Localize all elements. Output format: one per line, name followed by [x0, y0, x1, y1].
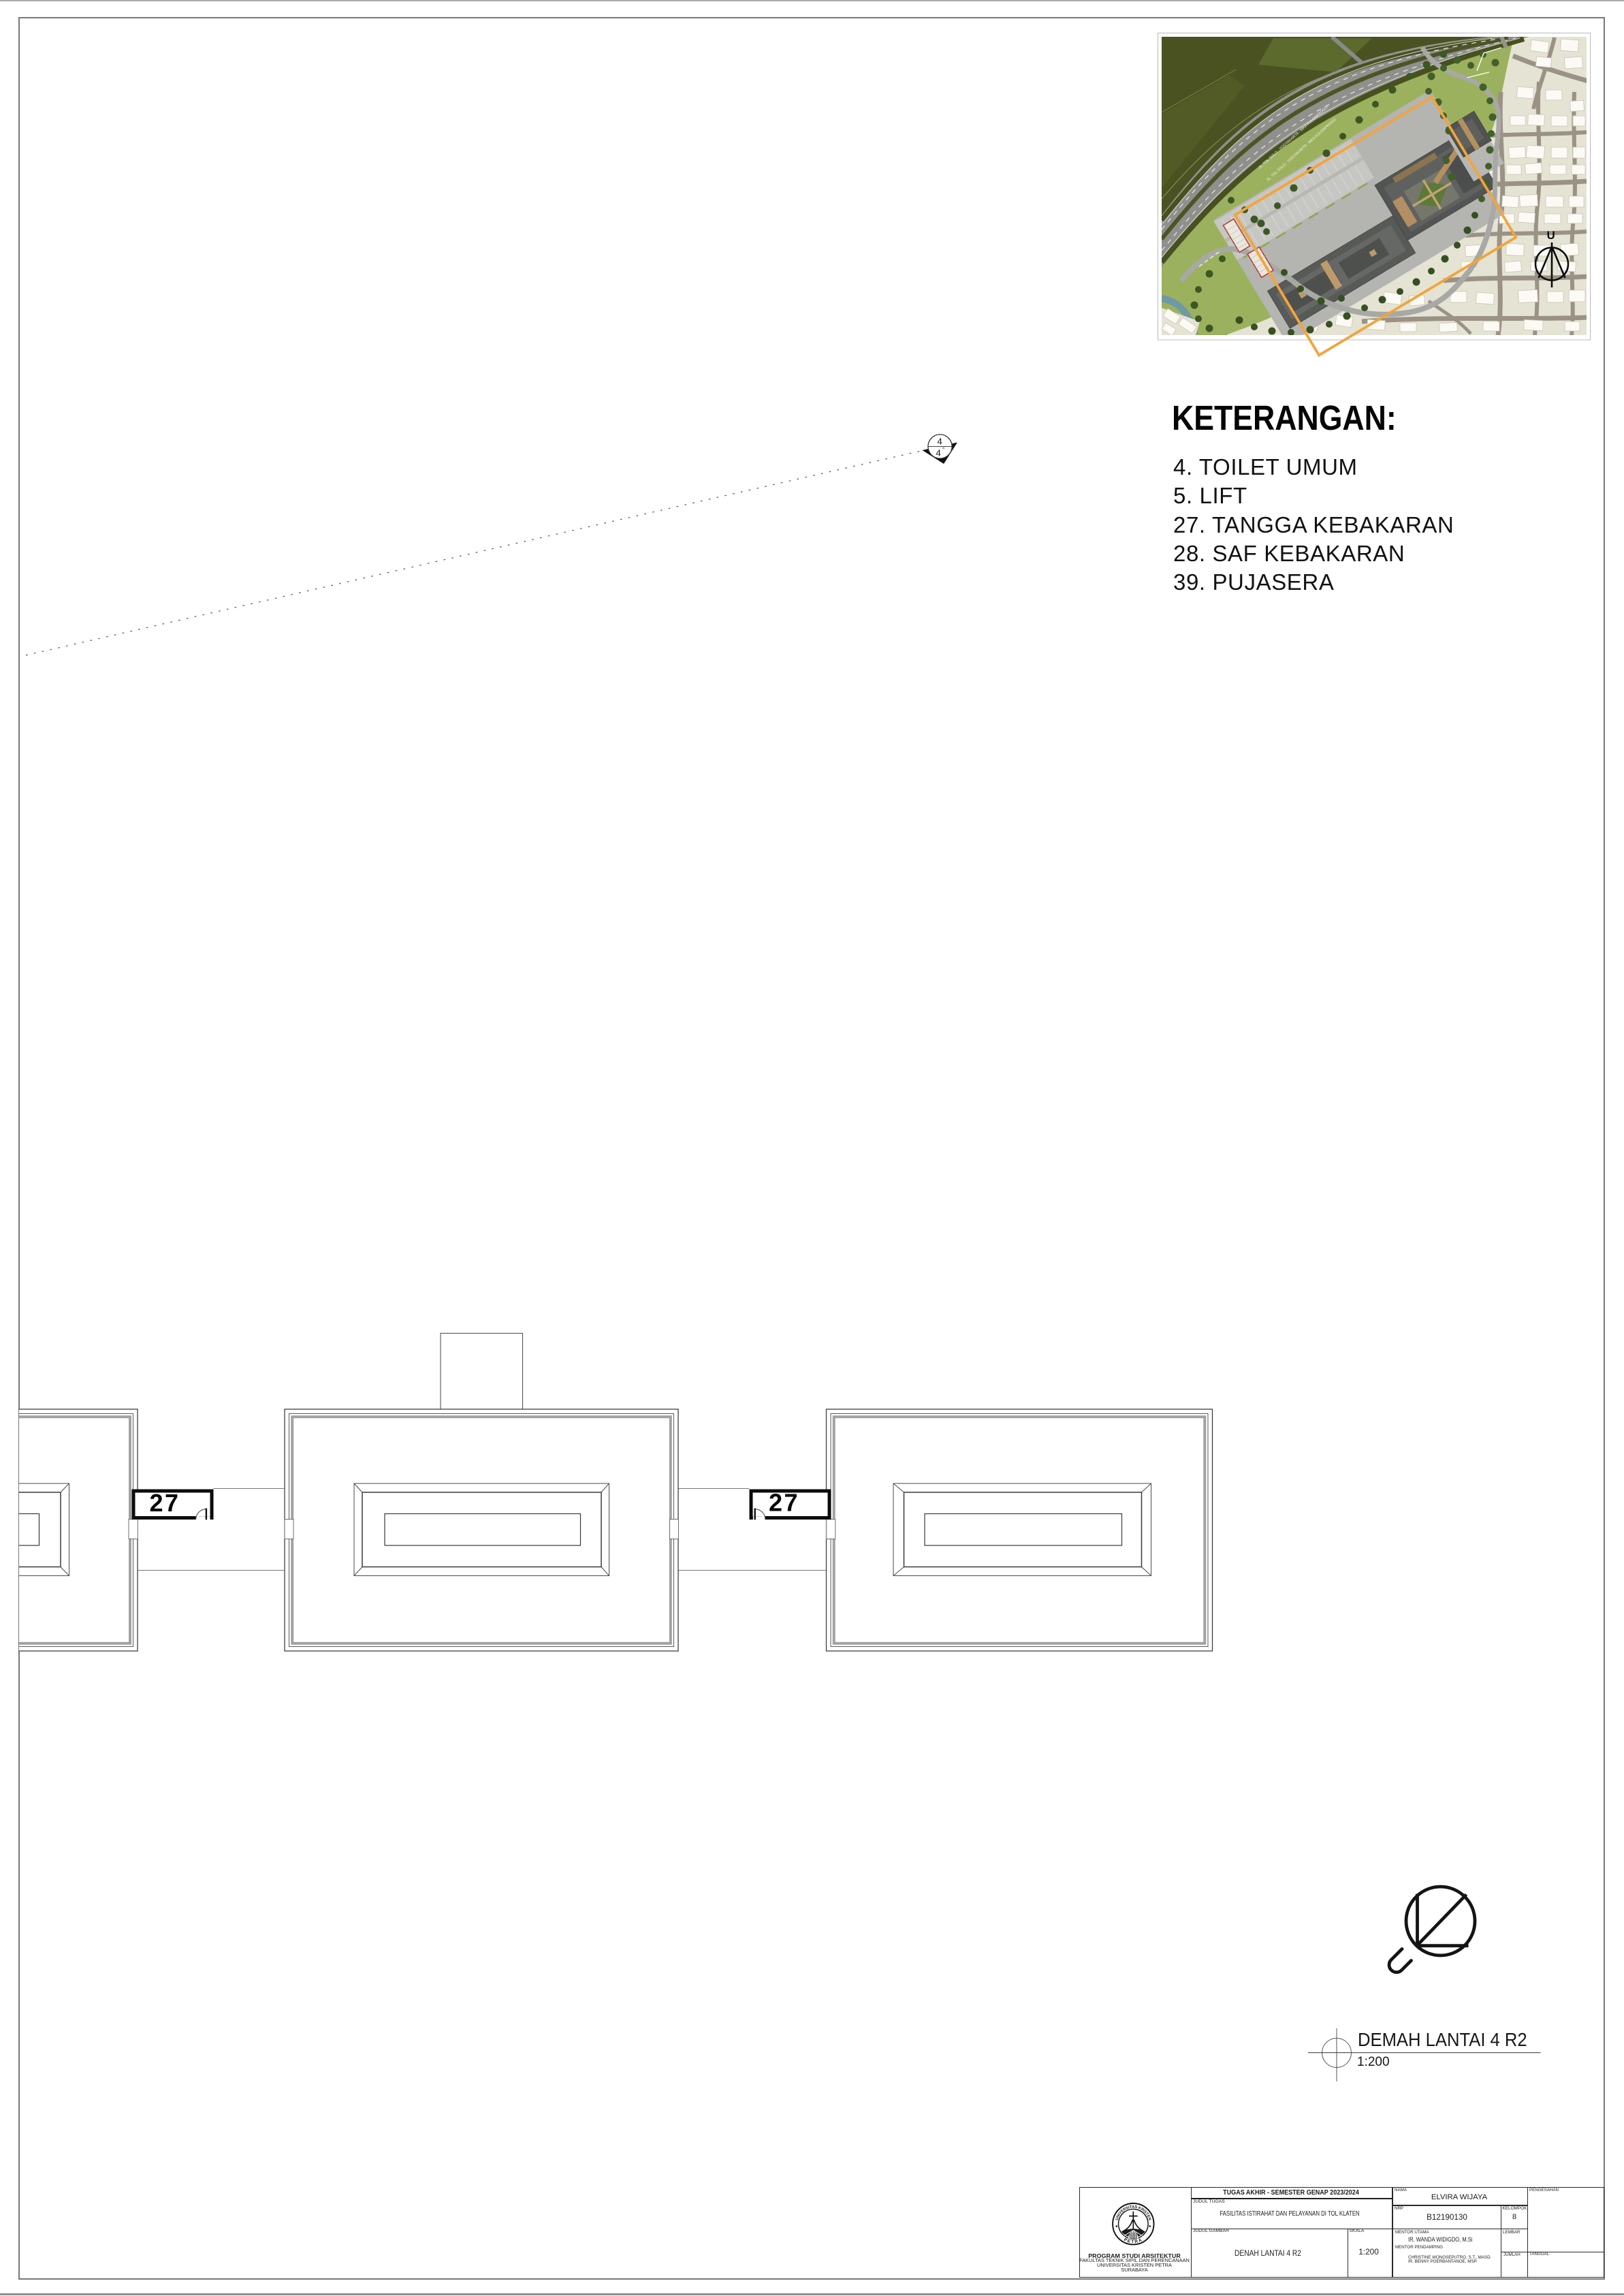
svg-text:27: 27: [150, 1489, 180, 1517]
svg-text:4: 4: [938, 437, 942, 447]
svg-text:27: 27: [769, 1489, 799, 1517]
svg-text:4: 4: [936, 448, 941, 458]
svg-text:''': ''': [942, 447, 945, 452]
